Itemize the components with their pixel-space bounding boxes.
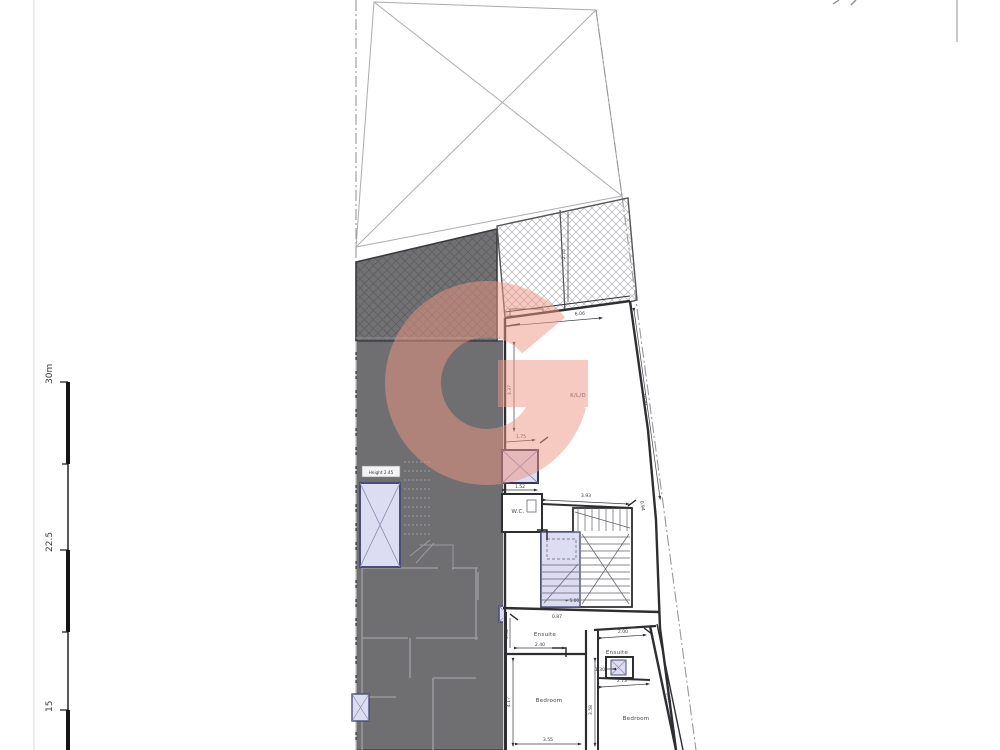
scale-label-15: 15: [45, 701, 55, 712]
dim-bedroom-l-width: 3.55: [543, 737, 553, 743]
label-ensuite-right: Ensuite: [606, 650, 628, 656]
dim-bedroom-r-depth: 3.58: [588, 705, 594, 715]
level-note: + 5.00: [565, 598, 579, 603]
dim-ensuite-l-width: 2.40: [535, 642, 545, 648]
height-note: Height 2.45: [369, 470, 394, 475]
dim-terrace: 2.75: [561, 249, 567, 259]
scale-bar: 30m 22.5 15: [45, 364, 70, 750]
dim-kld-top: 6.06: [575, 311, 586, 318]
dim-bedroom-l-depth: 4.17: [506, 697, 512, 707]
scale-label-22-5: 22.5: [45, 532, 55, 552]
dim-ensuite-r-inner: 2.73: [617, 678, 627, 684]
plan-sheet: Height 2.45 K/L/D W.C.: [0, 0, 1000, 750]
scale-label-30m: 30m: [45, 364, 55, 384]
floor-plan-drawing: Height 2.45 K/L/D W.C.: [0, 0, 1000, 750]
dim-ensuite-r-width: 2.00: [618, 629, 628, 635]
label-bedroom-right: Bedroom: [623, 716, 650, 722]
stair-flight-void: [541, 532, 580, 607]
window-shaft-left: [352, 694, 369, 721]
north-arrow-fragment: [833, 0, 856, 5]
dim-ensuite-l-door: 0.87: [552, 614, 562, 620]
dim-hall: 3.93: [581, 493, 591, 499]
label-ensuite-left: Ensuite: [534, 632, 556, 638]
label-bedroom-left: Bedroom: [536, 698, 563, 704]
dim-shaft-r: 1.30: [595, 667, 605, 673]
wc-room: W.C.: [502, 494, 542, 532]
label-wc: W.C.: [511, 509, 524, 515]
bedroom-left: Bedroom: [536, 698, 563, 704]
dim-ensuite-l-side: 0.92: [504, 629, 510, 639]
dim-shaft-bottom: 1.52: [515, 484, 525, 490]
